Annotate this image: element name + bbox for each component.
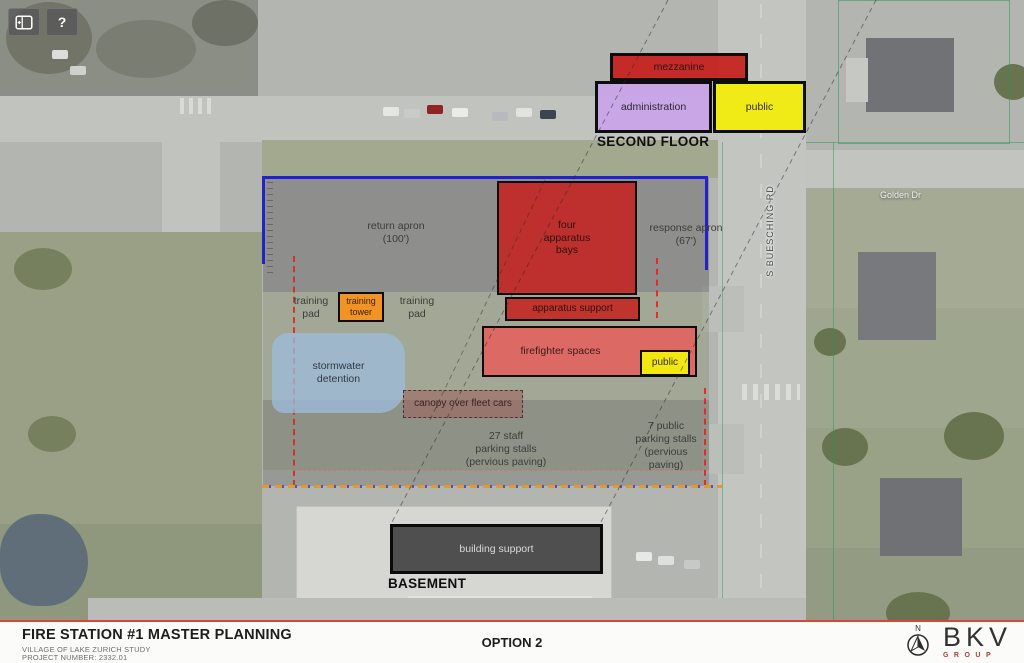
pond	[0, 514, 88, 606]
golden-dr-label: Golden Dr	[880, 190, 921, 200]
return-apron-label: return apron (100')	[336, 220, 456, 246]
parcel-line	[722, 142, 723, 598]
parcel-line	[838, 0, 1010, 144]
parked-car	[452, 108, 468, 117]
second-floor-administration-block: administration	[595, 81, 712, 133]
panel-toggle-button[interactable]	[8, 8, 40, 36]
setback-line	[656, 258, 658, 318]
tree-canopy	[96, 20, 196, 78]
buesching-rd-label: S BUESCHING RD	[765, 165, 779, 297]
canopy-fleet-cars-block: canopy over fleet cars	[403, 390, 523, 418]
parked-car	[70, 66, 86, 75]
tree-canopy	[944, 412, 1004, 460]
parked-car	[516, 108, 532, 117]
aerial-road-east	[806, 150, 1024, 188]
building-support-block: building support	[390, 524, 603, 574]
parcel-line	[806, 142, 1024, 143]
survey-boundary-line	[262, 485, 722, 488]
first-floor-public-block: public	[640, 350, 690, 376]
house-roof	[858, 252, 936, 340]
stormwater-detention-area: stormwater detention	[272, 333, 405, 413]
parked-car	[427, 105, 443, 114]
tree-canopy	[192, 0, 258, 46]
tree-canopy	[14, 248, 72, 290]
crosswalk	[742, 384, 800, 400]
tree-canopy	[822, 428, 868, 466]
second-floor-public-block: public	[713, 81, 806, 133]
project-number: PROJECT NUMBER: 2332.01	[22, 653, 127, 662]
logo-main-text: BKV	[943, 624, 1012, 651]
tree-canopy	[28, 416, 76, 452]
training-tower-block: training tower	[338, 292, 384, 322]
master-plan-canvas: mezzanine administration public SECOND F…	[0, 0, 1024, 663]
response-apron-label: response apron (67')	[626, 222, 746, 248]
tree-canopy	[814, 328, 846, 356]
four-apparatus-bays-block: four apparatus bays	[497, 181, 637, 295]
title-bar: FIRE STATION #1 MASTER PLANNING VILLAGE …	[0, 620, 1024, 663]
second-floor-mezzanine-block: mezzanine	[610, 53, 748, 81]
north-arrow-icon: N	[905, 623, 931, 659]
logo-sub-text: GROUP	[943, 652, 1012, 659]
public-parking-label: 7 public parking stalls (pervious paving…	[616, 420, 716, 473]
apparatus-support-block: apparatus support	[505, 297, 640, 321]
basement-title: BASEMENT	[388, 576, 466, 591]
training-pad-left-label: training pad	[281, 295, 341, 321]
staff-parking-label: 27 staff parking stalls (pervious paving…	[446, 430, 566, 469]
option-label: OPTION 2	[0, 635, 1024, 650]
parked-car	[383, 107, 399, 116]
parked-car	[540, 110, 556, 119]
help-button[interactable]: ?	[46, 8, 78, 36]
parked-car	[684, 560, 700, 569]
parked-car	[658, 556, 674, 565]
training-pad-right-label: training pad	[387, 295, 447, 321]
site-edge-hatch	[267, 182, 273, 274]
parked-car	[636, 552, 652, 561]
second-floor-title: SECOND FLOOR	[597, 134, 709, 149]
parked-car	[404, 109, 420, 118]
parked-car	[492, 112, 508, 121]
parked-car	[52, 50, 68, 59]
svg-text:N: N	[915, 624, 921, 633]
map-toolbar: ?	[8, 8, 78, 36]
site-outline-top	[262, 176, 708, 179]
aerial-road-left-vertical	[162, 96, 220, 254]
panel-toggle-icon	[15, 15, 33, 30]
site-outline-left	[262, 176, 265, 264]
crosswalk	[180, 98, 216, 114]
bkv-logo-text: BKV GROUP	[943, 624, 1012, 659]
parcel-line	[833, 142, 834, 663]
bkv-logo: N BKV GROUP	[905, 623, 1012, 659]
house-roof	[880, 478, 962, 556]
